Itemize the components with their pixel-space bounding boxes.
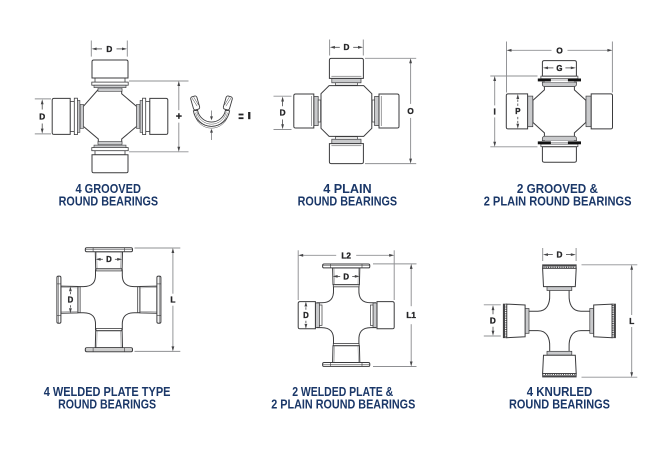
svg-text:D: D [490,316,496,325]
svg-text:ROUND BEARINGS: ROUND BEARINGS [58,396,156,411]
svg-text:G: G [556,64,562,73]
svg-text:2 PLAIN ROUND BEARINGS: 2 PLAIN ROUND BEARINGS [484,194,632,209]
svg-text:D: D [106,45,112,54]
svg-text:D: D [280,109,286,118]
svg-text:D: D [343,272,349,281]
svg-text:P: P [515,107,520,116]
svg-text:D: D [556,251,562,260]
svg-text:L1: L1 [406,311,416,320]
svg-text:O: O [407,107,414,116]
svg-text:D: D [39,112,45,121]
svg-text:I: I [494,107,496,116]
svg-text:D: D [68,296,74,305]
svg-text:L2: L2 [341,251,351,260]
svg-text:D: D [303,311,309,320]
svg-text:ROUND BEARINGS: ROUND BEARINGS [59,194,159,209]
svg-text:2 PLAIN ROUND BEARINGS: 2 PLAIN ROUND BEARINGS [271,396,415,411]
svg-text:ROUND BEARINGS: ROUND BEARINGS [509,396,610,411]
svg-text:L: L [629,317,634,326]
svg-text:D: D [343,43,349,52]
svg-text:ROUND BEARINGS: ROUND BEARINGS [298,194,398,209]
svg-text:O: O [556,46,563,55]
svg-text:L: L [170,296,175,305]
svg-text:D: D [106,255,112,264]
